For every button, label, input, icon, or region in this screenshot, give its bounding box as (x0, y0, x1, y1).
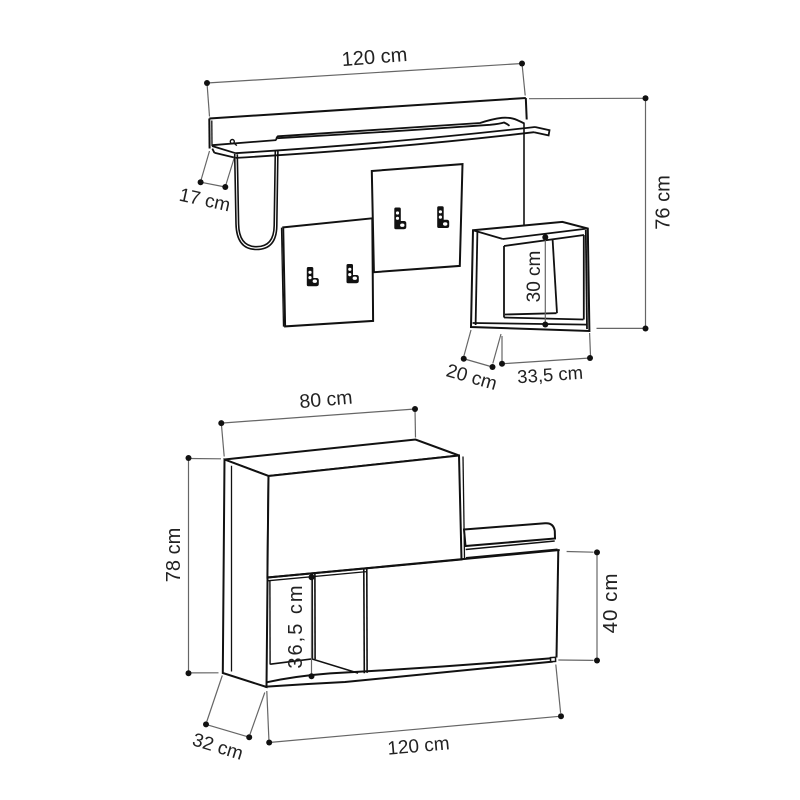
svg-text:30 cm: 30 cm (524, 251, 545, 303)
svg-text:40 cm: 40 cm (599, 573, 622, 634)
svg-text:78 cm: 78 cm (163, 528, 185, 582)
svg-text:80 cm: 80 cm (299, 387, 354, 414)
svg-text:76 cm: 76 cm (653, 175, 675, 229)
svg-text:36,5 cm: 36,5 cm (285, 583, 307, 668)
